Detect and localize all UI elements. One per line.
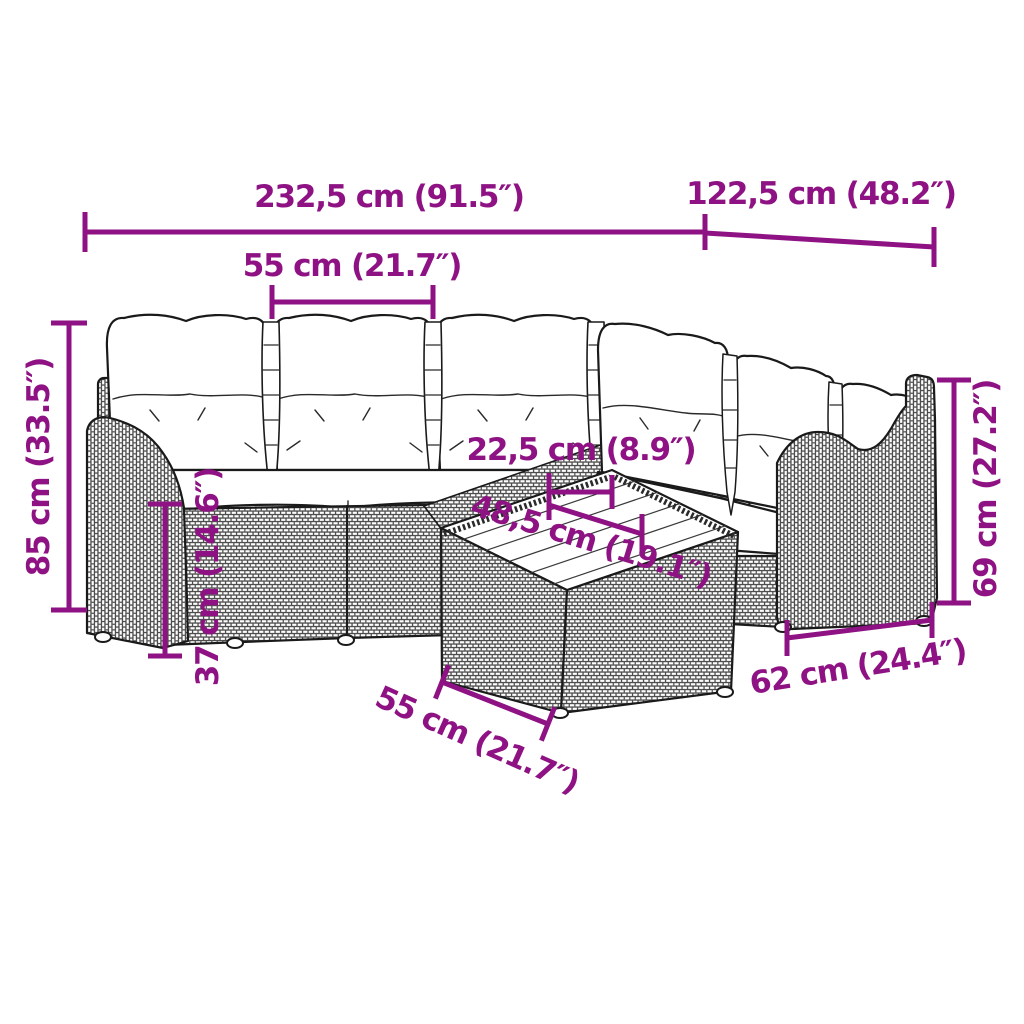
dim-label-seat-module-width: 55 cm (21.7″) [243, 248, 461, 284]
dim-label-table-clearance: 22,5 cm (8.9″) [466, 432, 695, 468]
dim-label-overall-height: 85 cm (33.5″) [21, 358, 57, 576]
dim-line-overall-width [85, 212, 705, 252]
dim-label-seat-height: 37 cm (14.6″) [190, 468, 226, 686]
dim-line-seat-module-width [272, 285, 433, 319]
dim-label-armrest-height: 69 cm (27.2″) [968, 380, 1004, 598]
dim-label-overall-width: 232,5 cm (91.5″) [254, 179, 524, 215]
dimension-diagram-canvas: 232,5 cm (91.5″) 122,5 cm (48.2″) 55 cm … [0, 0, 1024, 1024]
dim-label-overall-depth: 122,5 cm (48.2″) [686, 176, 956, 212]
dim-line-overall-depth [705, 227, 934, 267]
dim-line-armrest-height [937, 380, 971, 603]
